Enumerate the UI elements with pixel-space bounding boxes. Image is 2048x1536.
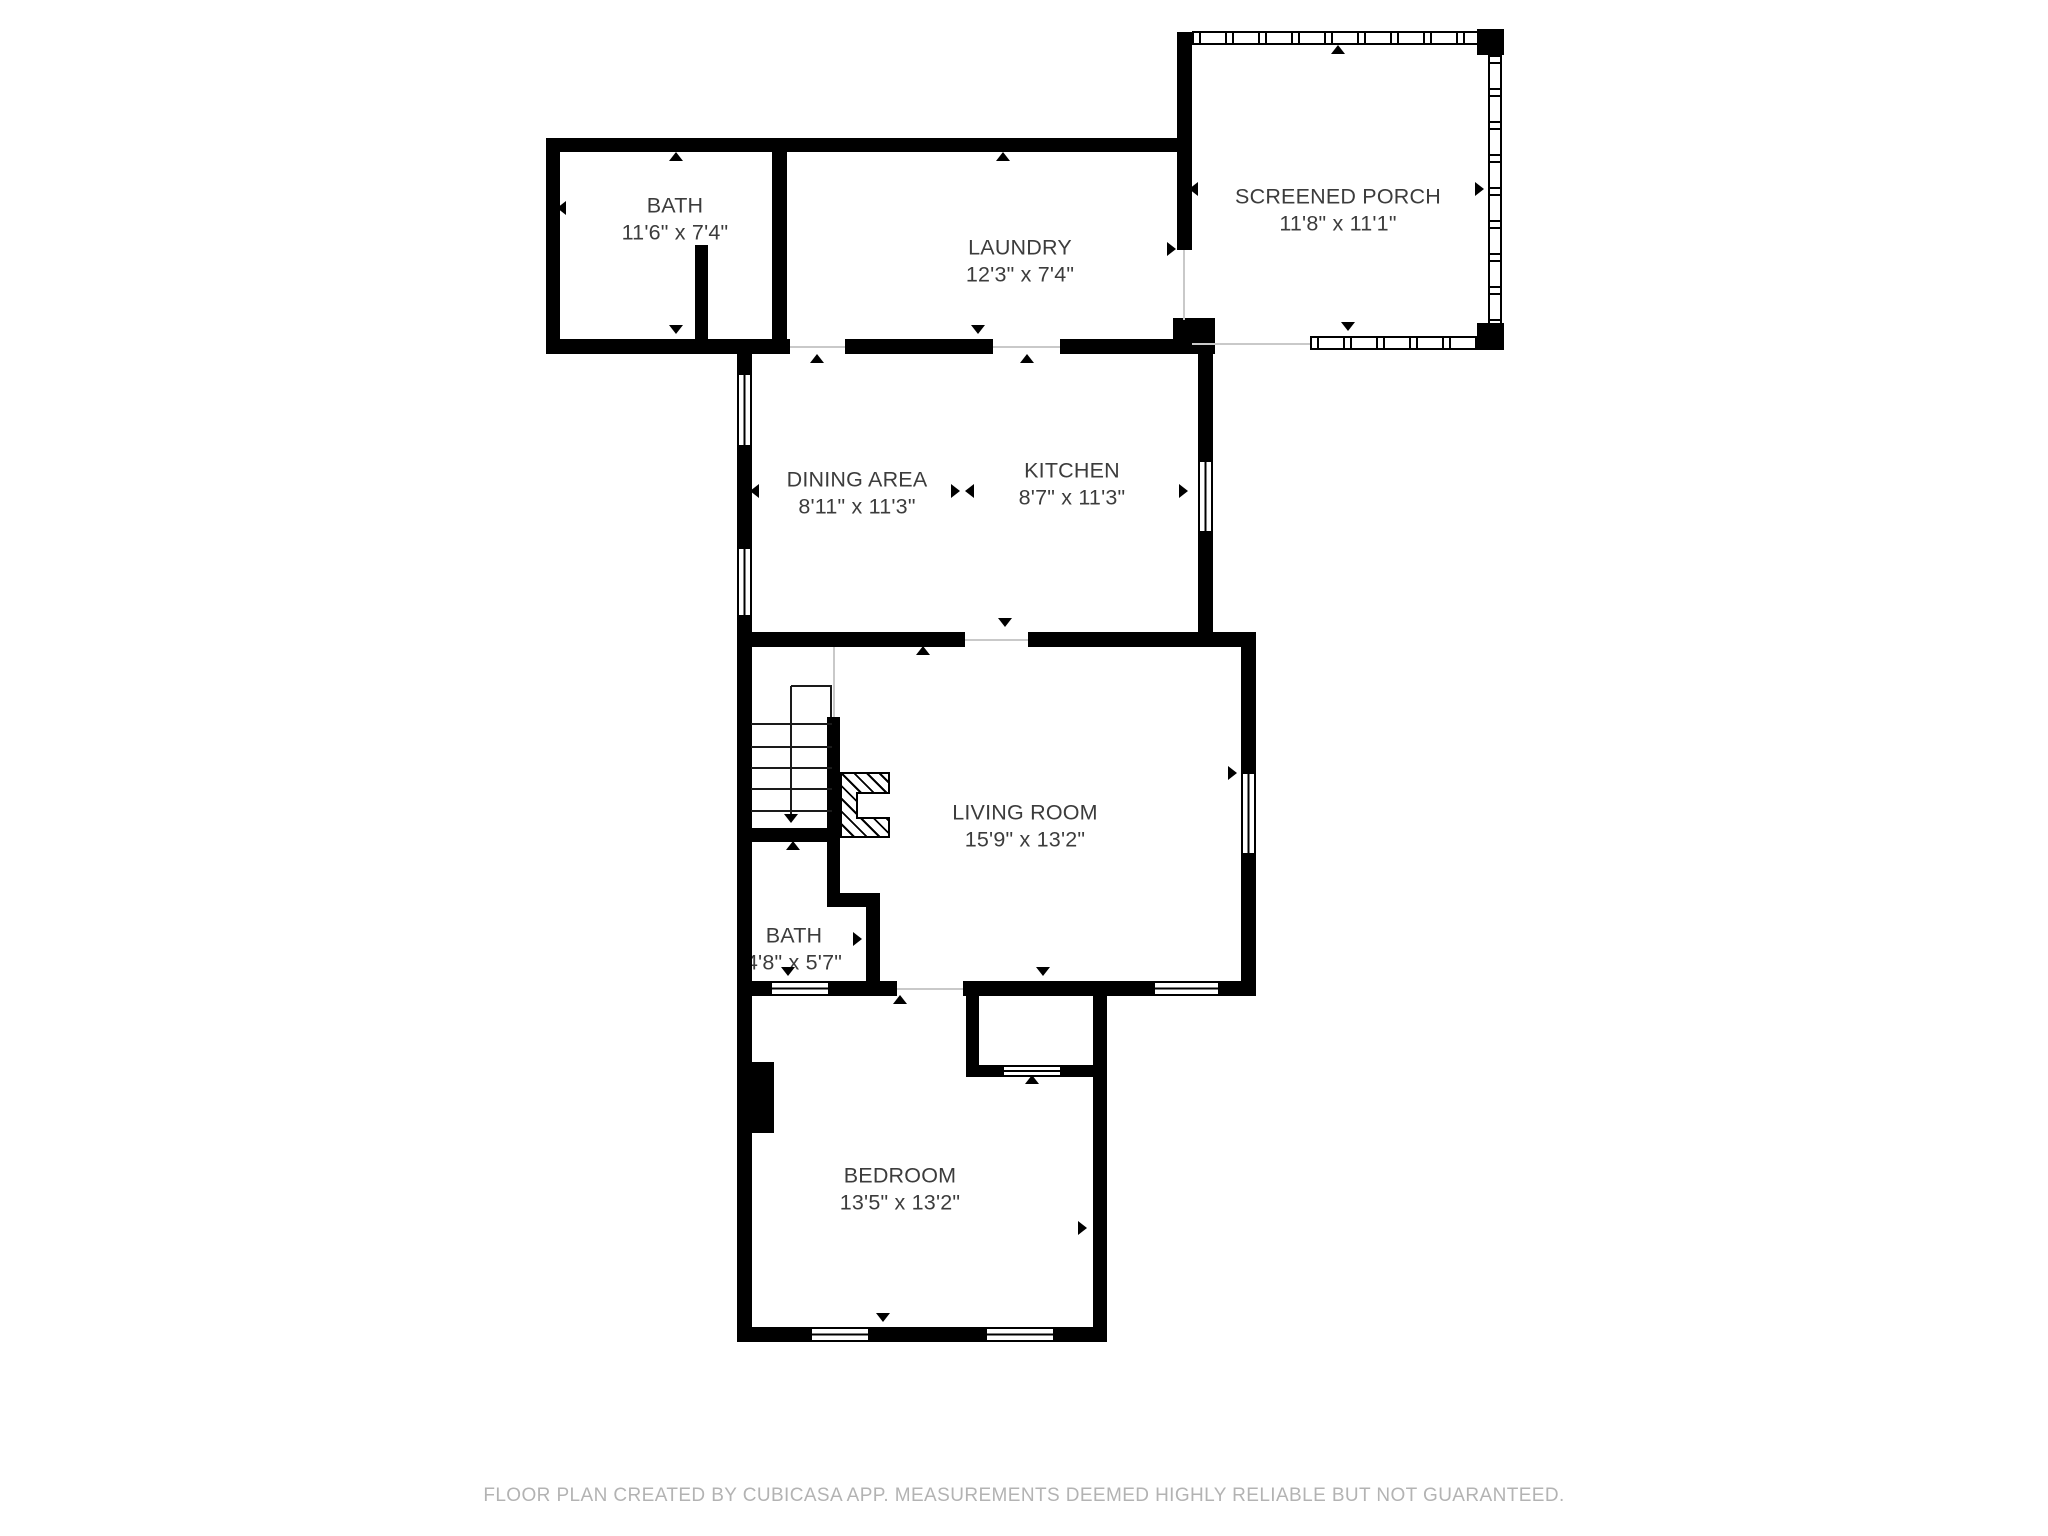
chimney-notch [856, 792, 890, 819]
dimension-arrow [893, 995, 907, 1004]
room-label-screened-porch: SCREENED PORCH 11'8" x 11'1" [1235, 184, 1441, 237]
porch-window-band [1310, 336, 1477, 350]
room-name: BEDROOM [840, 1163, 961, 1190]
window [1241, 772, 1256, 855]
wall [772, 152, 787, 340]
dimension-arrow [557, 201, 566, 215]
door-opening [1192, 343, 1310, 345]
floor-plan-canvas: BATH 11'6" x 7'4" LAUNDRY 12'3" x 7'4" S… [0, 0, 2048, 1536]
dimension-arrow [786, 841, 800, 850]
room-dims: 12'3" x 7'4" [966, 261, 1074, 288]
dimension-arrow [750, 484, 759, 498]
wall [1093, 996, 1107, 1077]
dimension-arrow [669, 325, 683, 334]
room-name: LIVING ROOM [952, 800, 1098, 827]
stair-down-arrow [784, 814, 798, 823]
dimension-arrow [1228, 766, 1237, 780]
wall [737, 1327, 810, 1342]
dimension-arrow [965, 484, 974, 498]
window [810, 1327, 870, 1342]
wall [1198, 354, 1213, 460]
wall [1028, 632, 1256, 647]
wall [737, 632, 965, 647]
room-name: LAUNDRY [966, 235, 1074, 262]
window [737, 547, 752, 617]
room-name: BATH [746, 923, 842, 950]
window [770, 981, 830, 996]
window [737, 373, 752, 447]
door-opening [790, 346, 845, 348]
wall [1177, 32, 1192, 250]
dimension-arrow [876, 1313, 890, 1322]
wall [737, 981, 770, 996]
dimension-arrow [996, 152, 1010, 161]
door-opening [833, 647, 835, 717]
room-dims: 11'6" x 7'4" [622, 219, 729, 246]
room-dims: 15'9" x 13'2" [952, 826, 1098, 853]
wall [830, 981, 897, 996]
room-label-bedroom: BEDROOM 13'5" x 13'2" [840, 1163, 961, 1216]
dimension-arrow [1179, 484, 1188, 498]
wall [546, 339, 790, 354]
wall [963, 981, 1153, 996]
dimension-arrow [830, 764, 839, 778]
wall [546, 138, 1191, 152]
wall [845, 339, 993, 354]
dimension-arrow [781, 967, 795, 976]
room-dims: 11'8" x 11'1" [1235, 210, 1441, 237]
wall [546, 138, 560, 354]
dimension-arrow [1331, 45, 1345, 54]
dimension-arrow [1020, 354, 1034, 363]
dimension-arrow [853, 932, 862, 946]
dimension-arrow [669, 152, 683, 161]
window [1153, 981, 1220, 996]
dimension-arrow [739, 932, 748, 946]
porch-window-band [1192, 31, 1477, 45]
wall [1477, 29, 1504, 55]
dimension-arrow [810, 354, 824, 363]
wall [1060, 339, 1180, 354]
dimension-arrow [1036, 967, 1050, 976]
dimension-arrow [1341, 322, 1355, 331]
dimension-arrow [971, 325, 985, 334]
wall [1198, 533, 1213, 647]
room-dims: 8'11" x 11'3" [787, 493, 928, 520]
porch-window-band [1488, 55, 1502, 323]
room-name: SCREENED PORCH [1235, 184, 1441, 211]
window [1198, 460, 1213, 533]
door-opening [965, 639, 1028, 641]
dimension-arrow [998, 618, 1012, 627]
dimension-arrow [1475, 182, 1484, 196]
wall [1220, 981, 1256, 996]
room-name: DINING AREA [787, 467, 928, 494]
room-name: BATH [622, 193, 729, 220]
wall [870, 1327, 985, 1342]
dimension-arrow [1189, 182, 1198, 196]
wall [1093, 1077, 1107, 1342]
room-label-kitchen: KITCHEN 8'7" x 11'3" [1019, 458, 1126, 511]
room-label-laundry: LAUNDRY 12'3" x 7'4" [966, 235, 1074, 288]
dimension-arrow [1025, 1075, 1039, 1084]
stair-direction-line [790, 686, 792, 816]
dimension-arrow [916, 646, 930, 655]
room-dims: 13'5" x 13'2" [840, 1189, 961, 1216]
wall [827, 717, 840, 842]
floor-plan: BATH 11'6" x 7'4" LAUNDRY 12'3" x 7'4" S… [0, 0, 2048, 1536]
wall [1241, 647, 1256, 772]
door-opening [897, 988, 963, 990]
door-opening [1183, 250, 1185, 320]
wall [1055, 1327, 1107, 1342]
wall [737, 828, 840, 842]
dimension-arrow [1078, 1221, 1087, 1235]
door-opening [993, 346, 1060, 348]
wall [752, 1062, 774, 1133]
footer-disclaimer: FLOOR PLAN CREATED BY CUBICASA APP. MEAS… [483, 1485, 1564, 1507]
window [985, 1327, 1055, 1342]
wall [1241, 855, 1256, 996]
wall [1173, 318, 1215, 354]
room-label-bath-upper: BATH 11'6" x 7'4" [622, 193, 729, 246]
room-label-dining-area: DINING AREA 8'11" x 11'3" [787, 467, 928, 520]
wall [966, 1065, 1002, 1077]
wall [1477, 323, 1504, 350]
room-label-living-room: LIVING ROOM 15'9" x 13'2" [952, 800, 1098, 853]
room-dims: 8'7" x 11'3" [1019, 484, 1126, 511]
wall [1062, 1065, 1093, 1077]
wall [866, 893, 880, 996]
dimension-arrow [739, 1221, 748, 1235]
stair-landing-outline [791, 685, 832, 719]
wall [737, 354, 752, 373]
dimension-arrow [951, 484, 960, 498]
wall [695, 245, 708, 339]
room-name: KITCHEN [1019, 458, 1126, 485]
dimension-arrow [1167, 242, 1176, 256]
